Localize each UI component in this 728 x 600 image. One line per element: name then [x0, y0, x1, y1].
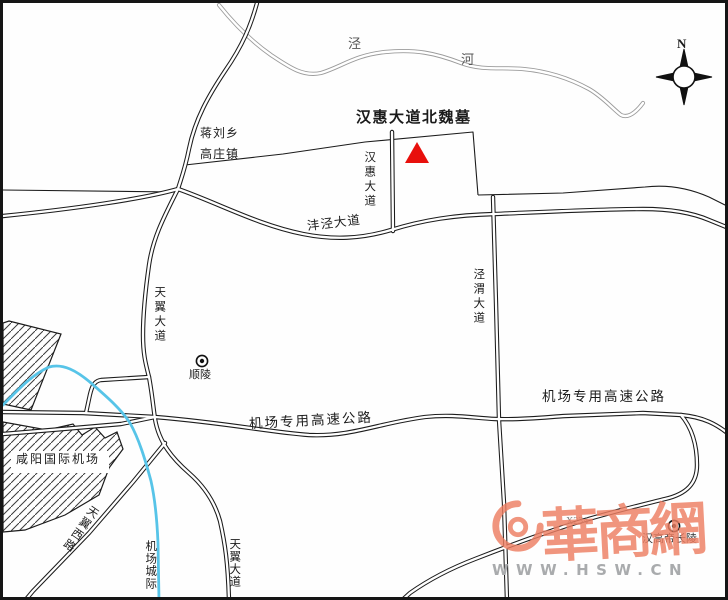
watermark-url: WWW.HSW.CN	[492, 561, 689, 579]
shunling-tomb-icon	[196, 355, 207, 366]
poi-label-shunling: 顺陵	[189, 369, 211, 382]
town-label-jiangliuxiang: 蒋刘乡	[200, 127, 239, 141]
watermark-brand: 華商網	[539, 480, 728, 574]
road-label-hanhui-avenue: 汉惠大道	[362, 151, 375, 223]
river-label-jing: 泾	[348, 37, 361, 52]
river-label-he: 河	[461, 53, 474, 68]
tomb-site-marker-icon	[405, 142, 429, 163]
newspaper-map: 泾 河 汉惠大道北魏墓 蒋刘乡 高庄镇 汉惠大道 沣泾大道 泾渭大道 天翼大道 …	[0, 0, 728, 600]
road-label-tianyi-avenue-upper: 天翼大道	[152, 286, 165, 352]
compass-north-label: N	[677, 37, 686, 52]
town-label-gaozhuangzhen: 高庄镇	[200, 148, 239, 162]
jing-river-line	[219, 5, 643, 116]
poi-label-xianyang-airport: 咸阳国际机场	[15, 453, 101, 467]
road-label-jingwei-avenue: 泾渭大道	[471, 268, 484, 334]
hsw-logo-icon	[489, 497, 547, 555]
compass-rose-icon	[656, 49, 712, 105]
rail-label-airport-intercity: 机场城际	[143, 540, 156, 600]
map-title: 汉惠大道北魏墓	[356, 110, 472, 127]
road-label-airport-expressway-right: 机场专用高速公路	[542, 389, 666, 405]
road-label-tianyi-avenue-lower: 天翼大道	[227, 538, 240, 600]
